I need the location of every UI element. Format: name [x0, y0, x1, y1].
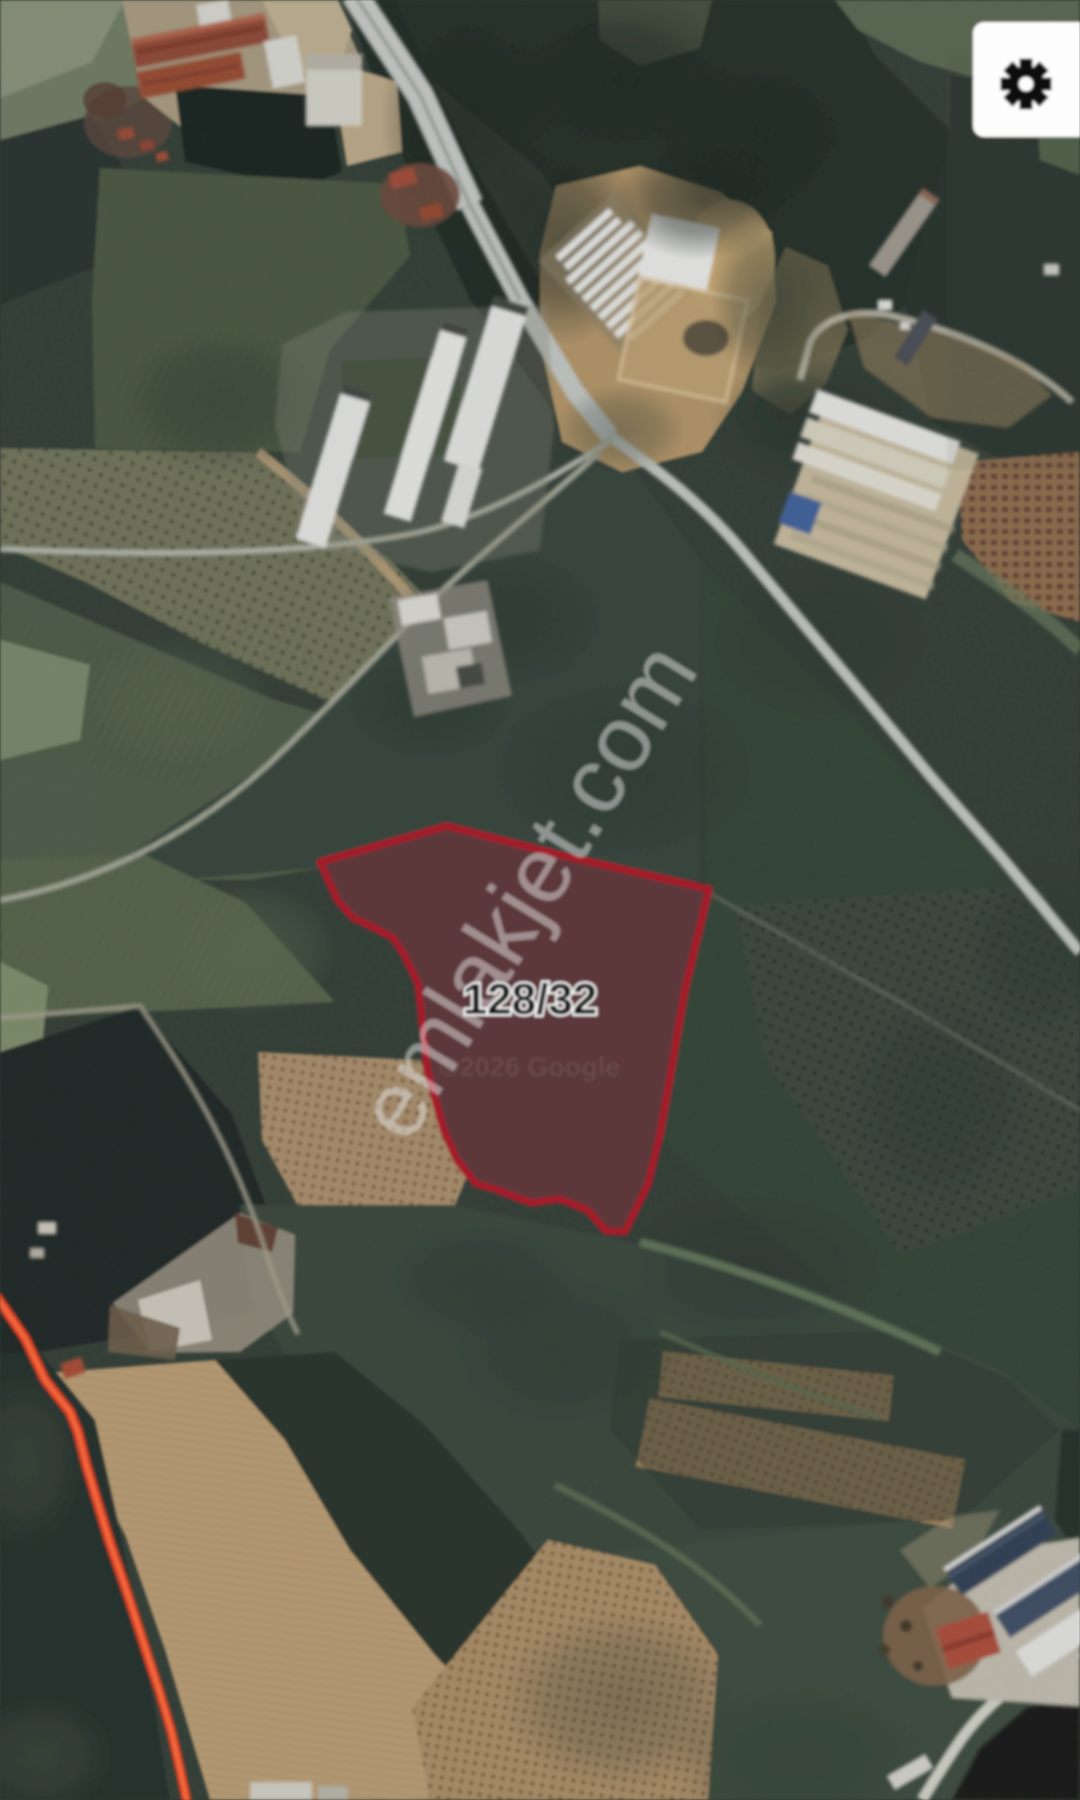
- svg-text:128/32: 128/32: [463, 975, 598, 1024]
